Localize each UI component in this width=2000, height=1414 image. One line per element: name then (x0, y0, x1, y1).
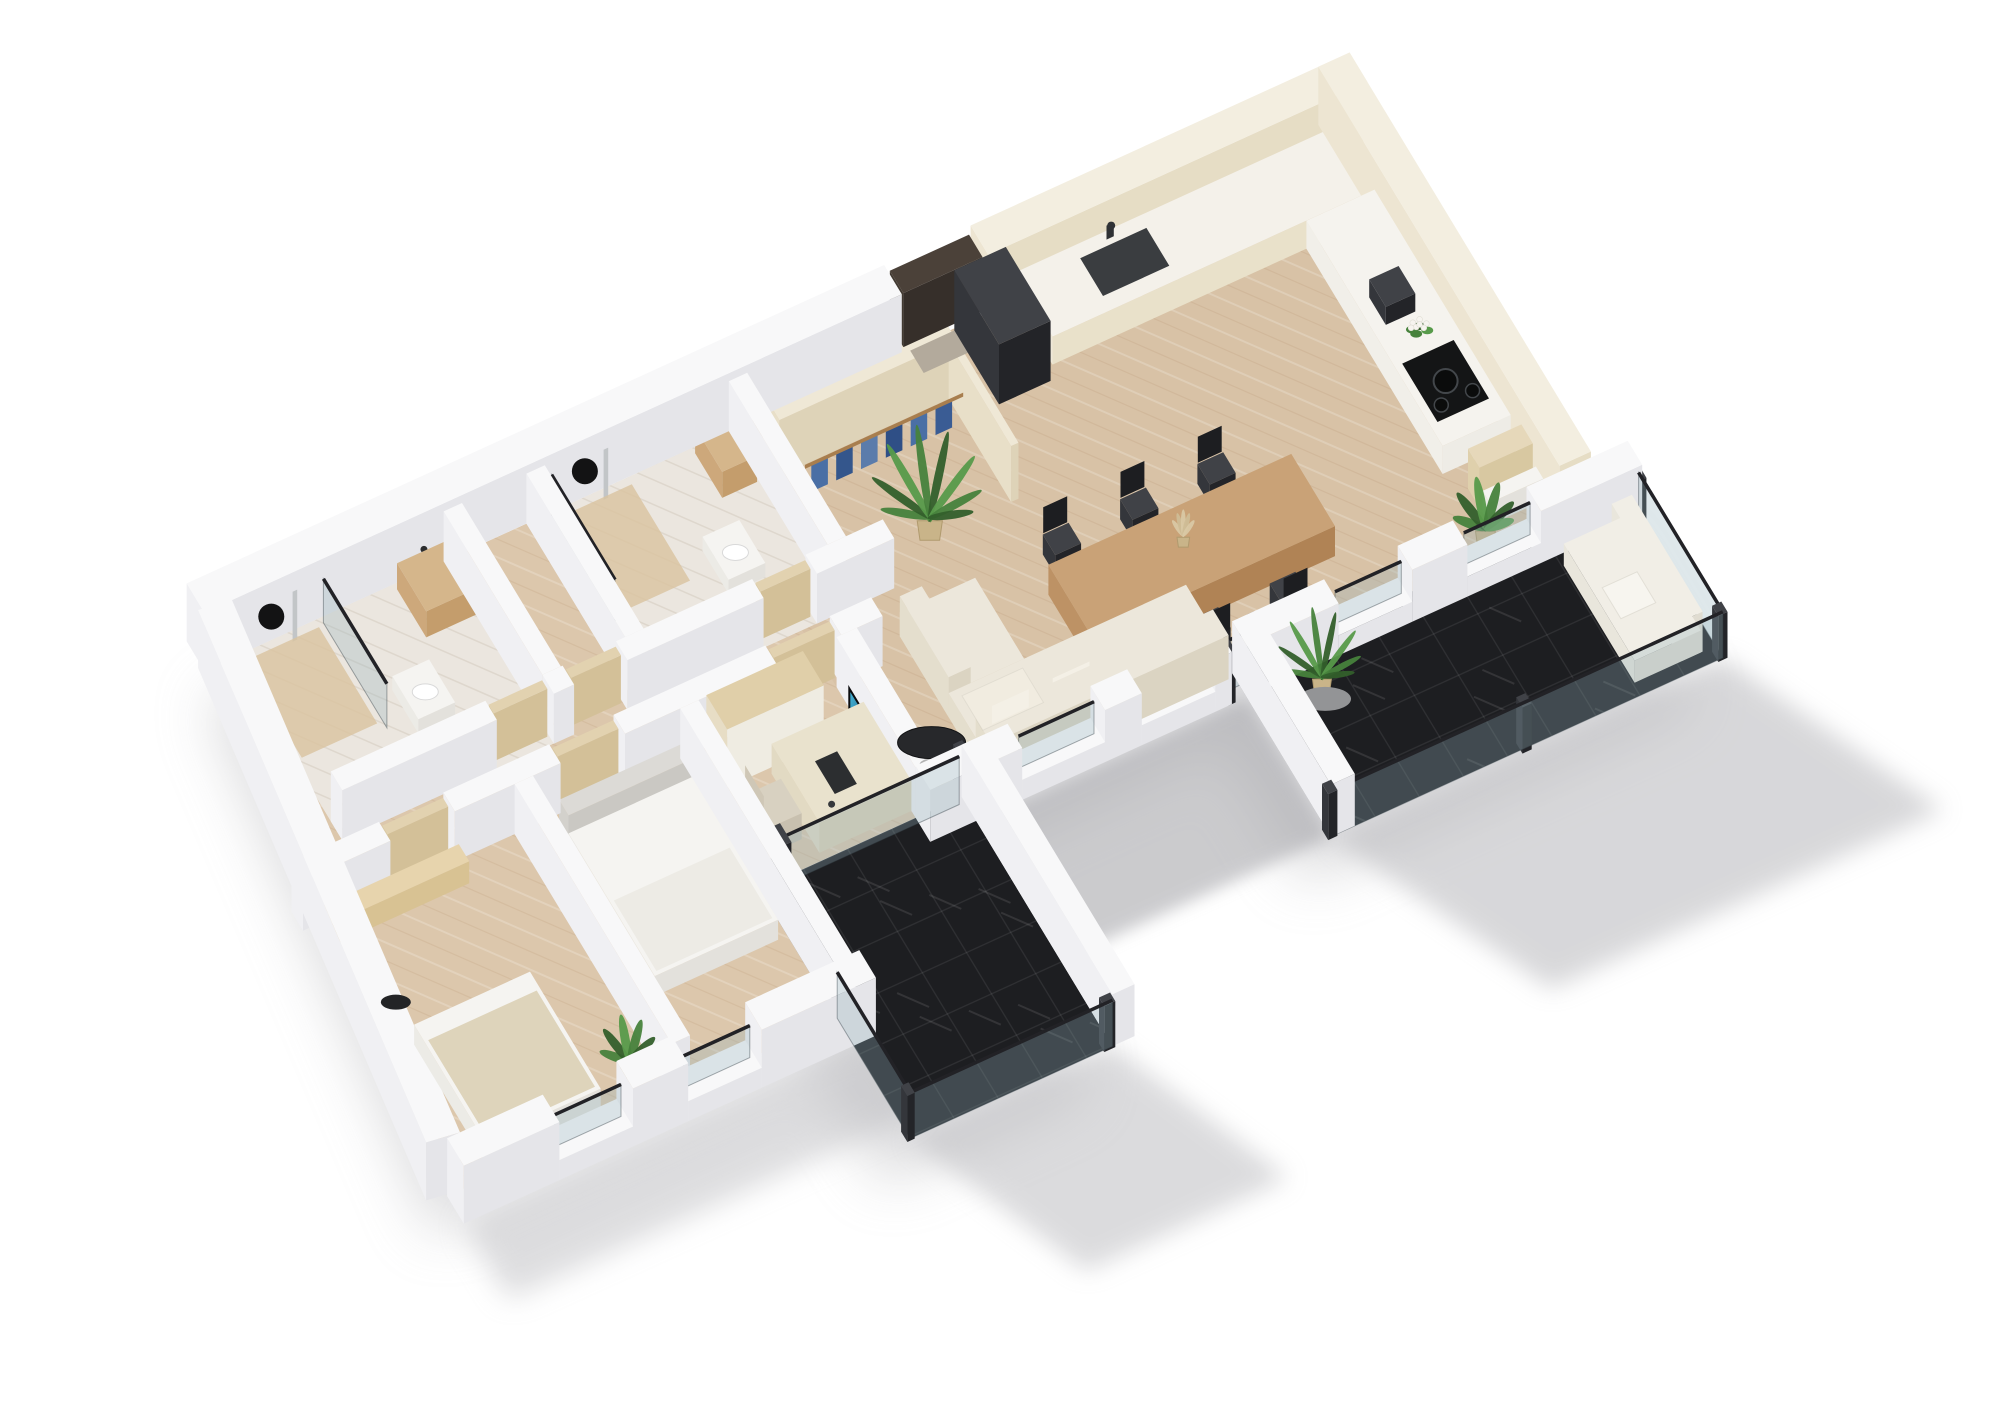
mouse (828, 801, 835, 808)
burner-4 (1466, 384, 1480, 398)
bedroom1-side-table (381, 995, 411, 1010)
floorplan-render (0, 0, 2000, 1414)
floorplan-svg (0, 0, 2000, 1414)
railing-right-post-4 (1322, 780, 1337, 841)
burner-center (1434, 369, 1458, 393)
kitchen-faucet (1107, 222, 1115, 230)
burner-3 (1434, 398, 1448, 412)
railing-middle-post-2 (901, 1082, 915, 1142)
bath2-toilet-seat (722, 544, 748, 560)
bath1-toilet-seat (412, 684, 438, 700)
bath2-shower-pole (604, 448, 609, 500)
bath1-shower-pole (293, 590, 298, 642)
bath2-shower-head (572, 458, 598, 484)
bath1-shower-head (258, 604, 284, 630)
